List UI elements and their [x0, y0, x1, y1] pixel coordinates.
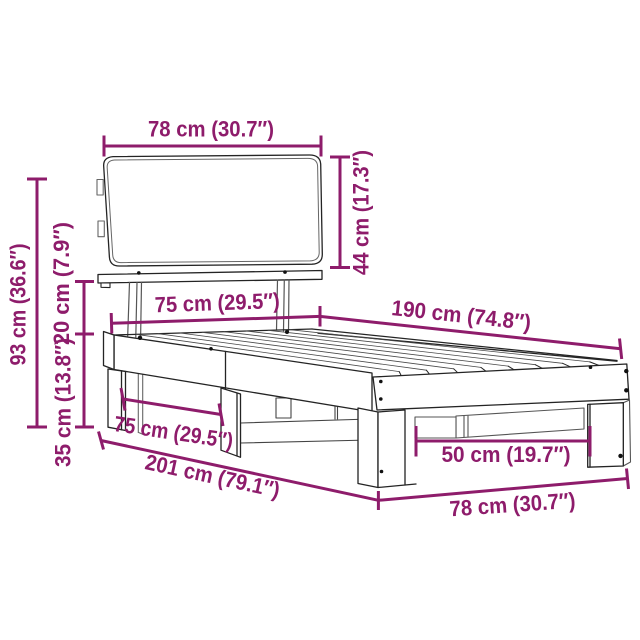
- svg-text:75 cm (29.5″): 75 cm (29.5″): [154, 288, 280, 317]
- svg-text:78 cm (30.7″): 78 cm (30.7″): [148, 117, 274, 142]
- svg-text:44 cm (17.3″): 44 cm (17.3″): [349, 150, 374, 275]
- svg-text:50 cm (19.7″): 50 cm (19.7″): [442, 442, 571, 467]
- svg-text:20 cm (7.9″): 20 cm (7.9″): [49, 222, 74, 345]
- svg-text:35 cm (13.8″): 35 cm (13.8″): [51, 338, 76, 467]
- svg-text:93 cm (36.6″): 93 cm (36.6″): [5, 244, 30, 366]
